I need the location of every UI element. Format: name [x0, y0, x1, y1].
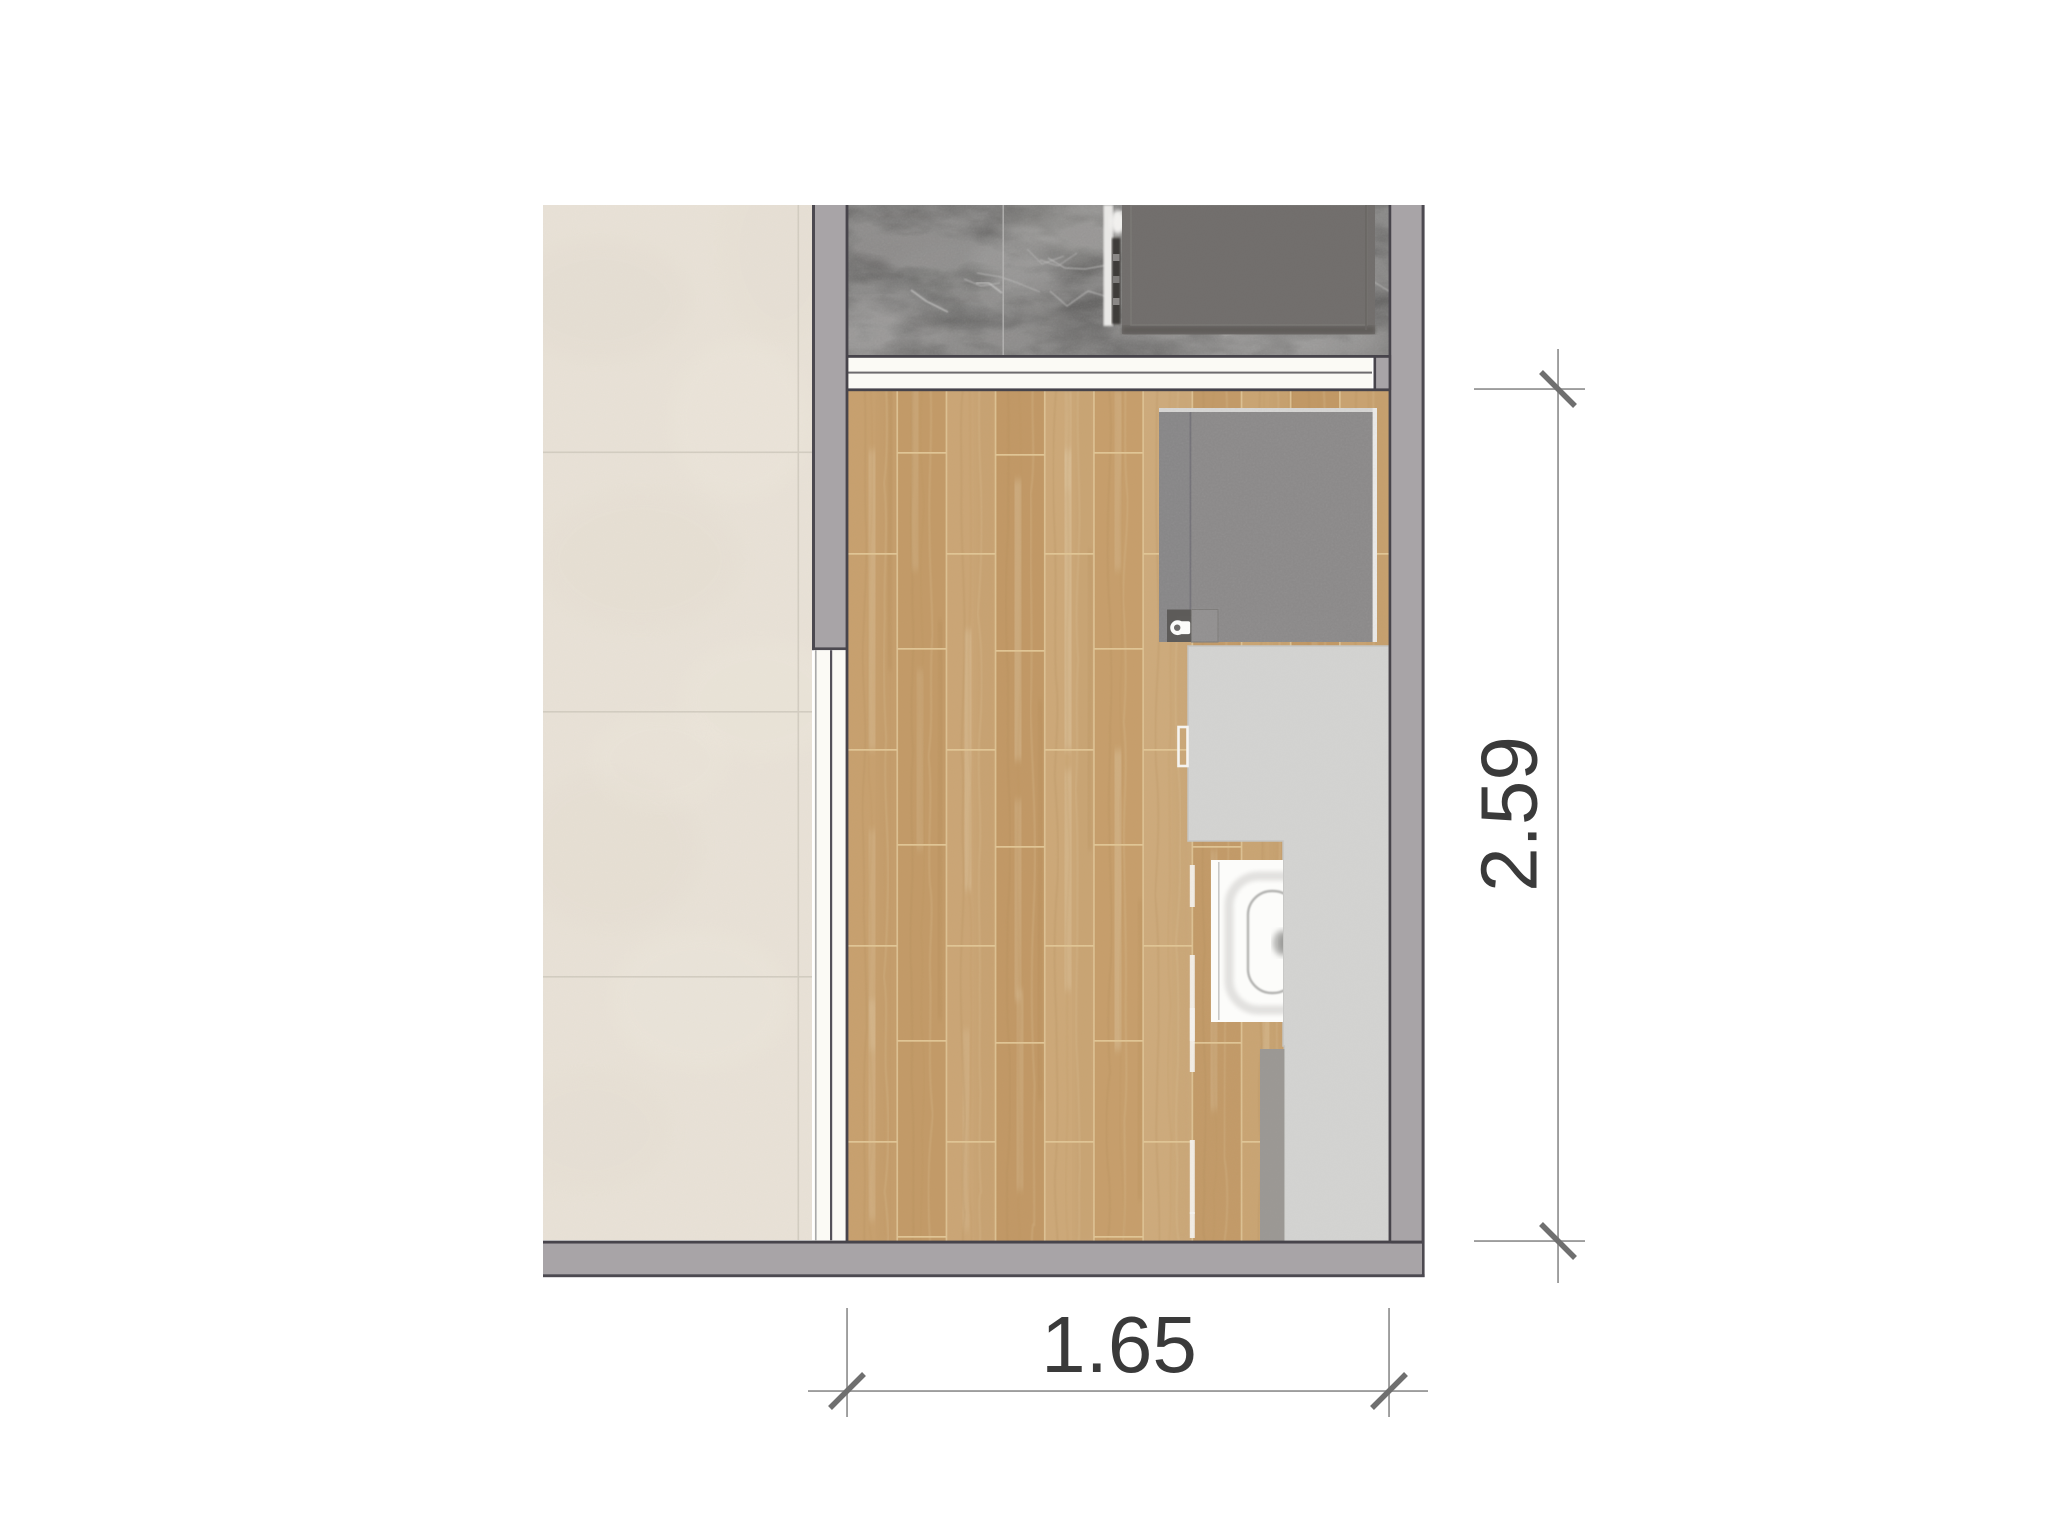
svg-text:2.59: 2.59 [1465, 736, 1554, 892]
svg-text:1.65: 1.65 [1041, 1300, 1197, 1389]
